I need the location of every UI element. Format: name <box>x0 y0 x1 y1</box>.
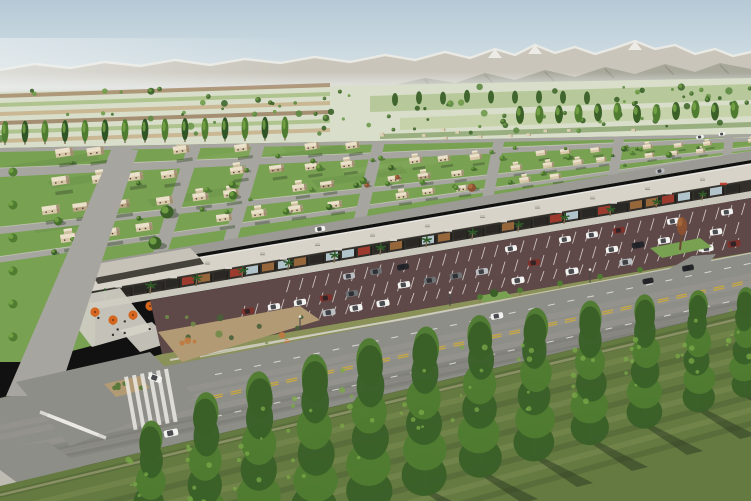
aerial-rendering: aerial-masterplan-community-rendering <box>0 0 751 501</box>
scene-canvas <box>0 0 751 501</box>
